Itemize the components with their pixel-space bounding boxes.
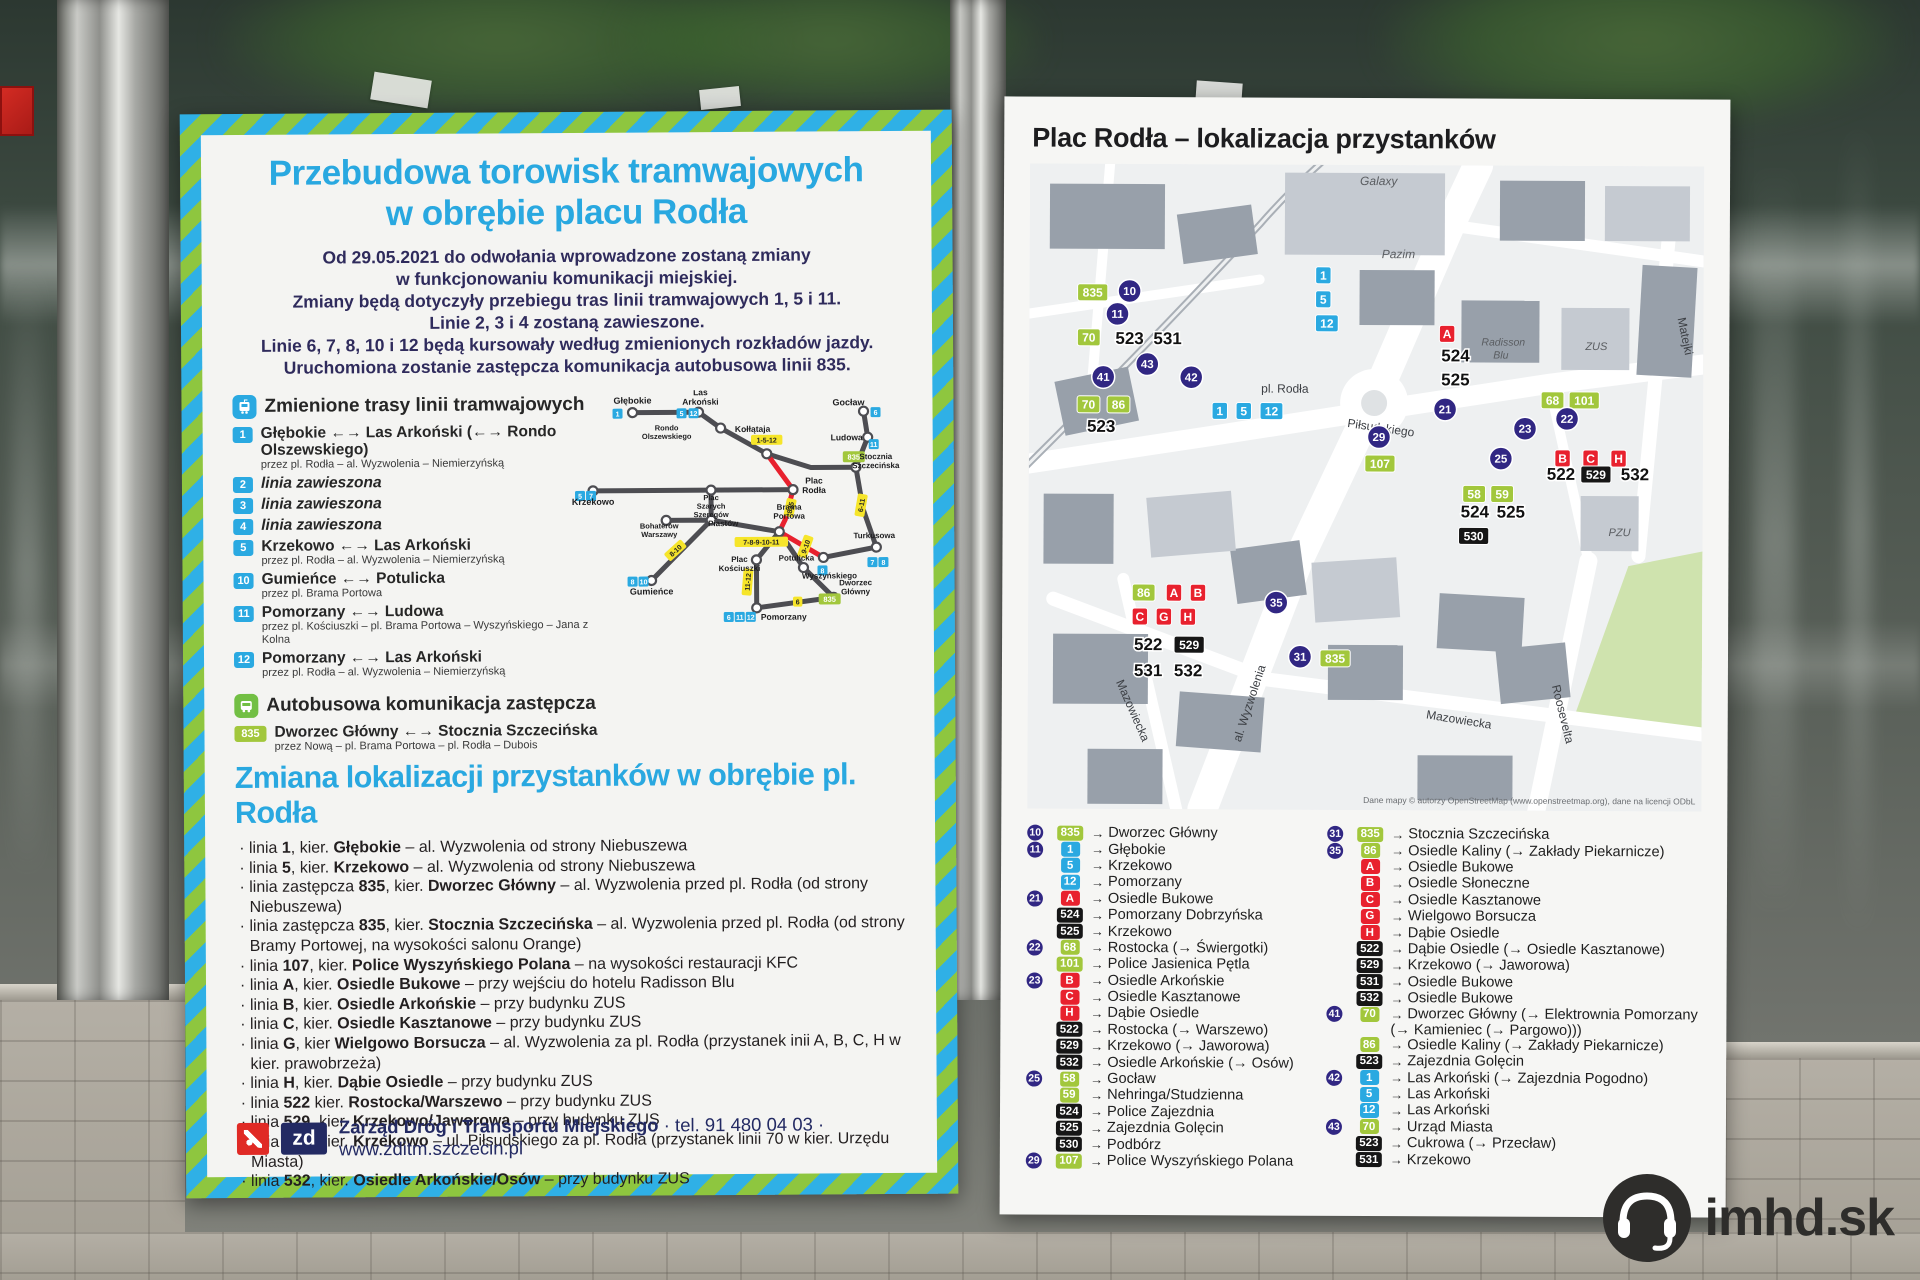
tram-routes-list: Zmienione trasy linii tramwajowych 1Głęb… <box>232 393 606 754</box>
line-badge-slot: 1 <box>1053 842 1087 857</box>
diagram-stop-label: Szczecińska <box>852 461 900 470</box>
arrow-icon: → <box>1090 1153 1103 1168</box>
legend-row: G→Wielgowo Borsucza <box>1327 908 1701 926</box>
arrow-icon: → <box>1090 989 1103 1004</box>
legend-destination: Pomorzany <box>1108 874 1182 890</box>
arrow-icon: → <box>1091 842 1104 857</box>
legend-row: B→Osiedle Słoneczne <box>1327 875 1701 893</box>
line-badge-text: 530 <box>1464 529 1484 543</box>
route-text: linia zawieszona <box>261 474 382 493</box>
diagram-stop-label: Potulicka <box>779 553 815 562</box>
stop-legend: 10835→Dworzec Główny111→Głębokie5→Krzeko… <box>1026 825 1701 1172</box>
diagram-line-chip: 1 <box>613 409 623 419</box>
route-item: 1Głębokie ←→ Las Arkoński (←→ Rondo Olsz… <box>233 423 605 472</box>
route-text: Gumieńce ←→ Potulickaprzez pl. Brama Por… <box>261 570 445 601</box>
arrow-icon: → <box>1090 1006 1103 1021</box>
line-badge-slot: 525 <box>1052 1120 1086 1135</box>
street-label: pl. Rodła <box>1261 382 1309 396</box>
arrow-icon: → <box>1090 1104 1103 1119</box>
arrow-icon: → <box>1090 1055 1103 1070</box>
line-badge-slot: 523 <box>1352 1136 1386 1151</box>
line-badge-slot: B <box>1353 876 1387 891</box>
line-badge-slot: 86 <box>1352 1037 1386 1052</box>
legend-destination: Cukrowa (→ Przecław) <box>1407 1135 1556 1152</box>
line-badge-text: 12 <box>1265 404 1279 418</box>
diagram-line-chip: 8 <box>628 577 638 587</box>
tram-icon <box>232 395 256 419</box>
line-badge-text: 529 <box>1179 638 1199 652</box>
line-badge-text: 107 <box>1370 457 1390 471</box>
legend-destination: Osiedle Słoneczne <box>1408 876 1530 893</box>
stop-number-circle: 23 <box>1027 972 1043 988</box>
svg-text:1-5-12: 1-5-12 <box>757 438 777 445</box>
diagram-stop-label: Brama <box>777 503 803 512</box>
legend-row: 2268→Rostocka (→ Świergotki) <box>1027 939 1327 957</box>
legend-row: 522→Rostocka (→ Warszewo) <box>1026 1021 1326 1039</box>
legend-destination: Wielgowo Borsucza <box>1408 908 1536 925</box>
line-badge-text: B <box>1558 452 1567 466</box>
line-number: 523 <box>1087 417 1115 436</box>
street-label: PZU <box>1609 527 1631 539</box>
route-via: przez Nową – pl. Brama Portowa – pl. Rod… <box>275 739 598 754</box>
legend-row: 530→Podbórz <box>1026 1136 1326 1154</box>
stop-number-slot: 41 <box>1326 1006 1348 1022</box>
diagram-stop-label: Arkoński <box>682 397 718 407</box>
svg-text:835: 835 <box>823 595 836 604</box>
curb <box>1725 1042 1920 1058</box>
arrow-icon: → <box>1390 1119 1403 1134</box>
route-item: 4linia zawieszona <box>233 515 605 535</box>
legend-destination: Dąbie Osiedle (→ Osiedle Kasztanowe) <box>1408 941 1665 958</box>
line-badge-slot: 12 <box>1053 875 1087 890</box>
svg-text:6: 6 <box>796 599 800 606</box>
line-badge-text: 1 <box>1320 269 1327 283</box>
svg-text:11: 11 <box>736 615 744 622</box>
route-text: Dworzec Główny ←→ Stocznia Szczecińskapr… <box>274 722 597 754</box>
legend-destination: Osiedle Kaliny (→ Zakłady Piekarnicze) <box>1408 843 1664 860</box>
line-badge: 5 <box>1360 1087 1379 1102</box>
legend-row: H→Dąbie Osiedle <box>1327 924 1701 942</box>
line-badge: 2 <box>233 477 253 493</box>
bus-section-title: Autobusowa komunikacja zastępcza <box>266 693 596 717</box>
glass-streak <box>12 260 42 880</box>
route-name: Dworzec Główny ←→ Stocznia Szczecińska <box>274 722 597 741</box>
diagram-stop-label: Portowa <box>773 512 805 521</box>
legend-destination: Zajezdnia Golęcin <box>1407 1053 1524 1070</box>
legend-row: 421→Las Arkoński (→ Zajezdnia Pogodno) <box>1326 1069 1700 1087</box>
line-badge-slot: 525 <box>1053 924 1087 939</box>
route-item: 3linia zawieszona <box>233 494 605 514</box>
route-name: Gumieńce ←→ Potulicka <box>261 570 445 588</box>
route-name: Pomorzany ←→ Ludowa <box>262 602 606 621</box>
line-badge: 529 <box>1057 1038 1082 1053</box>
legend-destination: Police Wyszyńskiego Polana <box>1107 1153 1294 1170</box>
poster-title: Przebudowa torowisk tramwajowych w obręb… <box>231 149 901 235</box>
diagram-line-chip: 835 <box>819 593 841 604</box>
svg-text:7-8-9-10-11: 7-8-9-10-11 <box>743 540 779 547</box>
line-badge-text: C <box>1136 610 1145 624</box>
route-text: Pomorzany ←→ Las Arkońskiprzez pl. Rodła… <box>262 648 505 679</box>
line-badge: 835 <box>234 726 266 742</box>
line-badge-text: 58 <box>1467 487 1481 501</box>
legend-row: 5→Krzekowo <box>1027 857 1327 875</box>
legend-row: 525→Krzekowo <box>1027 923 1327 941</box>
line-badge: 525 <box>1056 1120 1081 1135</box>
stop-number: 29 <box>1373 432 1386 444</box>
poster-left-inner: Przebudowa torowisk tramwajowych w obręb… <box>201 131 937 1177</box>
route-text: linia zawieszona <box>261 495 382 514</box>
route-text: Pomorzany ←→ Ludowaprzez pl. Kościuszki … <box>262 602 606 647</box>
legend-destination: Police Zajezdnia <box>1107 1104 1214 1120</box>
line-badge: 522 <box>1057 1022 1082 1037</box>
stop-number-slot: 29 <box>1026 1153 1048 1169</box>
poster-footer: zd Zarząd Dróg i Transportu Miejskiego ·… <box>237 1113 907 1161</box>
arrow-icon: → <box>1090 1088 1103 1103</box>
stop-change-item: · linia zastępcza 835, kier. Stocznia Sz… <box>236 913 906 956</box>
footer-org: Zarząd Dróg i Transportu Miejskiego <box>339 1114 659 1137</box>
line-badge: 1 <box>1360 1070 1379 1085</box>
arrow-icon: → <box>1091 825 1104 840</box>
route-name: Głębokie ←→ Las Arkoński (←→ Rondo Olsze… <box>261 423 605 459</box>
diagram-stop <box>628 408 637 417</box>
line-badge: A <box>1060 891 1079 906</box>
line-badge: C <box>1060 989 1079 1004</box>
legend-column-left: 10835→Dworzec Główny111→Głębokie5→Krzeko… <box>1026 825 1327 1171</box>
legend-destination-wrap: (→ Kamieniec (→ Pargowo))) <box>1390 1023 1700 1038</box>
arrow-icon: → <box>1090 1071 1103 1086</box>
line-badge-text: 86 <box>1137 586 1151 600</box>
imhd-logo-icon <box>1599 1170 1695 1266</box>
line-badge: 12 <box>1359 1103 1378 1118</box>
svg-text:8: 8 <box>881 560 885 567</box>
legend-row: 10835→Dworzec Główny <box>1027 825 1327 843</box>
route-item: 835Dworzec Główny ←→ Stocznia Szczecińsk… <box>234 722 606 754</box>
legend-row: 525→Zajezdnia Golęcin <box>1026 1120 1326 1138</box>
arrow-icon: → <box>1390 1103 1403 1118</box>
route-via: przez pl. Rodła – al. Wyzwolenia – Niemi… <box>261 457 605 472</box>
route-item: 10Gumieńce ←→ Potulickaprzez pl. Brama P… <box>233 569 605 601</box>
line-badge: 835 <box>1358 827 1383 842</box>
legend-row: 523→Zajezdnia Golęcin <box>1326 1053 1700 1071</box>
stop-number: 25 <box>1494 454 1507 466</box>
line-badge-text: C <box>1586 452 1595 466</box>
line-badge: 530 <box>1056 1137 1081 1152</box>
route-item: 11Pomorzany ←→ Ludowaprzez pl. Kościuszk… <box>234 602 606 647</box>
intro-line: Uruchomiona zostanie zastępcza komunikac… <box>232 353 902 379</box>
legend-row: 2558→Gocław <box>1026 1070 1326 1088</box>
arrow-icon: → <box>1391 974 1404 989</box>
street-label: Radisson <box>1481 337 1525 349</box>
arrow-icon: → <box>1091 973 1104 988</box>
legend-row: 3586→Osiedle Kaliny (→ Zakłady Piekarnic… <box>1327 842 1701 860</box>
line-badge-slot: B <box>1053 973 1087 988</box>
line-number: 524 <box>1441 346 1470 365</box>
legend-row: 12→Las Arkoński <box>1326 1102 1700 1120</box>
line-badge-slot: 12 <box>1352 1103 1386 1118</box>
svg-text:1: 1 <box>616 411 620 418</box>
diagram-stop-label: Głębokie <box>613 395 651 405</box>
poster-title-line1: Przebudowa torowisk tramwajowych <box>231 149 901 194</box>
svg-text:11: 11 <box>870 442 878 449</box>
stop-change-item: · linia zastępcza 835, kier. Dworzec Głó… <box>235 874 905 917</box>
intro-line: Od 29.05.2021 do odwołania wprowadzone z… <box>232 243 902 269</box>
line-badge: 68 <box>1060 940 1079 955</box>
line-badge-text: 59 <box>1495 487 1509 501</box>
line-number: 522 <box>1134 635 1162 654</box>
diagram-line-chip: 7 <box>867 557 877 567</box>
svg-text:6: 6 <box>727 615 731 622</box>
window-frame-pillar <box>57 0 169 1000</box>
street-label: Galaxy <box>1360 174 1398 188</box>
line-badge: 532 <box>1057 1055 1082 1070</box>
line-badge-slot: H <box>1052 1006 1086 1021</box>
route-item: 12Pomorzany ←→ Las Arkońskiprzez pl. Rod… <box>234 648 606 680</box>
diagram-line-chip: 12 <box>746 612 756 622</box>
line-badge-slot: H <box>1353 925 1387 940</box>
line-badge-slot: 59 <box>1052 1088 1086 1103</box>
route-name: Krzekowo ←→ Las Arkoński <box>261 536 504 554</box>
line-badge: 86 <box>1360 1037 1379 1052</box>
route-name: linia zawieszona <box>261 516 382 534</box>
arrow-icon: → <box>1391 909 1404 924</box>
line-badge: H <box>1360 925 1379 940</box>
legend-destination: Dąbie Osiedle <box>1408 925 1500 941</box>
diagram-line-chip: 8 <box>878 557 888 567</box>
line-badge: 58 <box>1060 1071 1079 1086</box>
arrow-icon: → <box>1390 1070 1403 1085</box>
diagram-stop <box>872 543 881 552</box>
diagram-stop-label: Kołłątaja <box>735 424 771 434</box>
arrow-icon: → <box>1390 1136 1403 1151</box>
legend-destination: Krzekowo <box>1407 1152 1471 1168</box>
footer-text: Zarząd Dróg i Transportu Miejskiego · te… <box>339 1113 907 1160</box>
legend-destination: Osiedle Bukowe <box>1108 891 1214 907</box>
stop-number-slot: 10 <box>1027 825 1049 841</box>
bus-section-heading: Autobusowa komunikacja zastępcza <box>234 692 606 718</box>
diagram-stop-label: Ludowa <box>831 432 863 442</box>
tram-section-title: Zmienione trasy linii tramwajowych <box>264 394 584 418</box>
line-number: 532 <box>1621 465 1649 484</box>
line-badge-slot: C <box>1052 989 1086 1004</box>
diagram-stop-label: Gumieńce <box>630 586 674 596</box>
legend-destination: Zajezdnia Golęcin <box>1107 1120 1224 1137</box>
legend-row: 532→Osiedle Bukowe <box>1326 990 1700 1008</box>
line-badge-slot: G <box>1353 909 1387 924</box>
diagram-stop-label: Krzekowo <box>572 497 615 507</box>
stop-number: 42 <box>1185 372 1198 384</box>
line-badge: G <box>1360 909 1379 924</box>
route-text: Krzekowo ←→ Las Arkońskiprzez pl. Rodła … <box>261 536 504 567</box>
arrow-icon: → <box>1090 1137 1103 1152</box>
line-badge-text: H <box>1614 452 1623 466</box>
line-badge-text: 5 <box>1320 293 1327 307</box>
line-number: 525 <box>1497 503 1525 522</box>
legend-row: 31835→Stocznia Szczecińska <box>1327 826 1701 844</box>
legend-row: 59→Nehringa/Studzienna <box>1026 1087 1326 1105</box>
legend-row: 21A→Osiedle Bukowe <box>1027 890 1327 908</box>
line-badge-text: 529 <box>1586 468 1606 482</box>
line-badge: 525 <box>1057 924 1082 939</box>
line-badge-slot: 107 <box>1052 1153 1086 1168</box>
line-badge-text: G <box>1159 610 1168 624</box>
line-badge: C <box>1360 892 1379 907</box>
stop-number: 31 <box>1294 652 1307 664</box>
street-label: Pazim <box>1382 247 1415 261</box>
glass-streak <box>1845 120 1871 940</box>
line-number: 522 <box>1547 465 1575 484</box>
line-badge-text: 101 <box>1574 394 1594 408</box>
arrow-icon: → <box>1391 876 1404 891</box>
arrow-icon: → <box>1391 860 1404 875</box>
legend-destination: Osiedle Kasztanowe <box>1107 989 1240 1006</box>
legend-destination: Gocław <box>1107 1071 1156 1087</box>
arrow-icon: → <box>1391 942 1404 957</box>
line-badge: 11 <box>234 606 254 622</box>
legend-destination: Stocznia Szczecińska <box>1408 826 1549 843</box>
route-item: 2linia zawieszona <box>233 473 605 493</box>
line-badge: 70 <box>1360 1007 1379 1022</box>
legend-destination: Osiedle Kasztanowe <box>1408 892 1541 909</box>
legend-destination: Nehringa/Studzienna <box>1107 1087 1243 1104</box>
line-badge: 59 <box>1060 1088 1079 1103</box>
legend-destination: Las Arkoński (→ Zajezdnia Pogodno) <box>1407 1070 1648 1087</box>
legend-destination: Osiedle Bukowe <box>1408 859 1514 875</box>
city-map: GalaxyPazimRadissonBluZUSMatejkipl. Rodł… <box>1027 164 1704 812</box>
stop-number-circle: 35 <box>1327 842 1343 858</box>
line-badge-slot: 523 <box>1352 1054 1386 1069</box>
map-attribution: Dane mapy © autorzy OpenStreetMap (www.o… <box>1363 795 1696 806</box>
legend-row: 23B→Osiedle Arkońskie <box>1027 972 1327 990</box>
tram-items: 1Głębokie ←→ Las Arkoński (←→ Rondo Olsz… <box>233 423 607 680</box>
line-badge-slot: A <box>1053 891 1087 906</box>
stop-number: 11 <box>1111 309 1124 321</box>
arrow-icon: → <box>1391 925 1404 940</box>
bus-icon <box>234 694 258 718</box>
stop-number-slot: 11 <box>1027 841 1049 857</box>
diagram-stop-label: Olszewskiego <box>642 432 692 441</box>
poster-title-line2: w obrębie placu Rodła <box>231 190 901 235</box>
line-badge-slot: A <box>1353 859 1387 874</box>
stop-number-circle: 10 <box>1027 825 1043 841</box>
line-badge-slot: 522 <box>1052 1022 1086 1037</box>
stop-number-circle: 41 <box>1326 1006 1342 1022</box>
diagram-stop-label: Główny <box>841 587 870 596</box>
arrow-icon: → <box>1391 827 1404 842</box>
line-badge-text: H <box>1184 610 1193 624</box>
line-badge: B <box>1360 876 1379 891</box>
diagram-stop <box>819 553 828 562</box>
legend-destination: Las Arkoński <box>1407 1086 1490 1102</box>
route-name: linia zawieszona <box>261 495 382 513</box>
line-badge-slot: 522 <box>1353 941 1387 956</box>
legend-row: 524→Police Zajezdnia <box>1026 1103 1326 1121</box>
imhd-watermark: imhd.sk <box>1599 1170 1895 1266</box>
diagram-line-chip: 6 <box>793 597 802 607</box>
legend-destination: Głębokie <box>1108 841 1166 857</box>
arrow-icon: → <box>1090 1121 1103 1136</box>
legend-row: 523→Cukrowa (→ Przecław) <box>1326 1135 1700 1153</box>
line-badge-slot: 532 <box>1352 991 1386 1006</box>
diagram-line-chip: 11 <box>735 612 745 622</box>
line-badge: 531 <box>1357 974 1382 989</box>
stop-number-circle: 25 <box>1026 1071 1042 1087</box>
line-badge: 12 <box>1060 875 1079 890</box>
line-number: 524 <box>1461 502 1490 521</box>
arrow-icon: → <box>1390 1152 1403 1167</box>
svg-text:12: 12 <box>747 615 755 622</box>
line-badge: 5 <box>1061 858 1080 873</box>
arrow-icon: → <box>1090 1039 1103 1054</box>
legend-destination: Krzekowo <box>1108 858 1172 874</box>
line-badge-text: 835 <box>1083 286 1103 300</box>
tram-section-heading: Zmienione trasy linii tramwajowych <box>232 393 604 419</box>
line-badge: 524 <box>1056 1104 1081 1119</box>
imhd-watermark-text: imhd.sk <box>1705 1188 1895 1248</box>
routes-section: Zmienione trasy linii tramwajowych 1Głęb… <box>232 391 904 747</box>
legend-row: 12→Pomorzany <box>1027 874 1327 892</box>
arrow-icon: → <box>1090 1022 1103 1037</box>
svg-text:7: 7 <box>870 560 874 567</box>
diagram-stop <box>775 527 784 536</box>
legend-destination: Osiedle Bukowe <box>1408 974 1514 990</box>
line-badge: 523 <box>1356 1136 1381 1151</box>
stop-change-item: · linia 532, kier. Osiedle Arkońskie/Osó… <box>237 1168 907 1192</box>
line-badge: 4 <box>233 519 253 535</box>
line-number: 523 <box>1115 329 1143 348</box>
arrow-icon: → <box>1390 1054 1403 1069</box>
line-badge: A <box>1361 859 1380 874</box>
line-badge-slot: 86 <box>1353 843 1387 858</box>
legend-row: 4370→Urząd Miasta <box>1326 1118 1700 1136</box>
diagram-stop-label: Warszawy <box>641 530 678 539</box>
changes-heading: Zmiana lokalizacji przystanków w obrębie… <box>235 757 905 831</box>
arrow-icon: → <box>1390 1087 1403 1102</box>
legend-row: 531→Krzekowo <box>1326 1151 1700 1169</box>
line-badge-slot: 835 <box>1053 825 1087 840</box>
arrow-icon: → <box>1390 991 1403 1006</box>
stop-number: 23 <box>1519 424 1532 436</box>
line-badge-text: 68 <box>1546 394 1560 408</box>
legend-destination: Rostocka (→ Warszewo) <box>1107 1022 1268 1039</box>
window-frame-mullion <box>950 0 1006 1000</box>
stop-number-slot: 31 <box>1327 826 1349 842</box>
line-badge: 3 <box>233 498 253 514</box>
legend-column-right: 31835→Stocznia Szczecińska3586→Osiedle K… <box>1326 826 1701 1172</box>
map-svg: GalaxyPazimRadissonBluZUSMatejkipl. Rodł… <box>1027 164 1704 812</box>
line-badge-slot: 524 <box>1053 907 1087 922</box>
route-text: linia zawieszona <box>261 516 382 535</box>
legend-row: 532→Osiedle Arkońskie (→ Osów) <box>1026 1054 1326 1072</box>
arrow-icon: → <box>1091 957 1104 972</box>
legend-destination: Osiedle Arkońskie (→ Osów) <box>1107 1055 1294 1072</box>
line-badge-slot: 530 <box>1052 1137 1086 1152</box>
line-badge: 10 <box>233 573 253 589</box>
diagram-stop-label: Rodła <box>802 485 826 495</box>
line-badge: 523 <box>1357 1054 1382 1069</box>
arrow-icon: → <box>1091 940 1104 955</box>
arrow-icon: → <box>1091 924 1104 939</box>
line-badge: 532 <box>1357 991 1382 1006</box>
arrow-icon: → <box>1390 1037 1403 1052</box>
line-badge-slot: 532 <box>1052 1055 1086 1070</box>
line-badge-slot: 529 <box>1052 1038 1086 1053</box>
arrow-icon: → <box>1091 891 1104 906</box>
legend-row: 86→Osiedle Kaliny (→ Zakłady Piekarnicze… <box>1326 1037 1700 1055</box>
legend-destination: Dworzec Główny <box>1108 825 1218 841</box>
line-badge-slot: C <box>1353 892 1387 907</box>
line-badge-text: 1 <box>1216 404 1223 418</box>
stop-number: 10 <box>1123 286 1136 298</box>
